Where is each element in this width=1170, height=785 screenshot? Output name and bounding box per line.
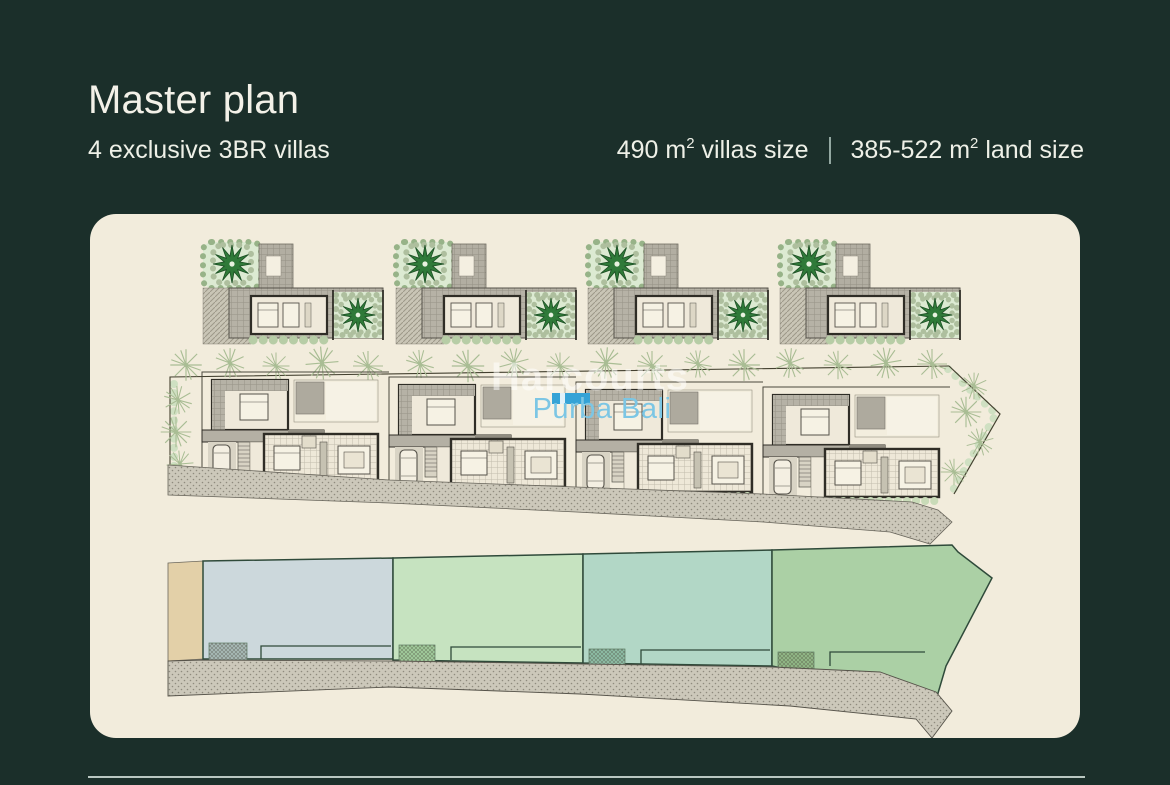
site-plan xyxy=(168,545,992,738)
subheader-row: 4 exclusive 3BR villas 490 m2 villas siz… xyxy=(88,136,1084,165)
roof-plan-1 xyxy=(203,242,383,344)
roof-plan-4 xyxy=(780,242,960,344)
roof-plans-row xyxy=(203,242,960,344)
stat-villas-size: 490 m2 villas size xyxy=(617,136,809,165)
master-plan-panel: Harcourts Purba Bali xyxy=(90,214,1080,738)
road-bottom xyxy=(168,660,952,738)
sand-strip xyxy=(168,561,203,661)
watermark-office: Purba Bali xyxy=(533,393,672,425)
stats: 490 m2 villas size 385-522 m2 land size xyxy=(617,136,1084,165)
roof-plan-3 xyxy=(588,242,768,344)
slide: Master plan 4 exclusive 3BR villas 490 m… xyxy=(0,0,1170,785)
footer-divider xyxy=(88,776,1085,778)
page-title: Master plan xyxy=(88,78,299,123)
stat-land-size: 385-522 m2 land size xyxy=(851,136,1085,165)
lot-3 xyxy=(583,550,772,666)
stats-divider xyxy=(829,137,831,164)
subtitle: 4 exclusive 3BR villas xyxy=(88,136,330,165)
villa-floor-plan-4 xyxy=(763,387,950,501)
roof-plan-2 xyxy=(396,242,576,344)
master-plan-drawing: Harcourts Purba Bali xyxy=(90,214,1080,738)
